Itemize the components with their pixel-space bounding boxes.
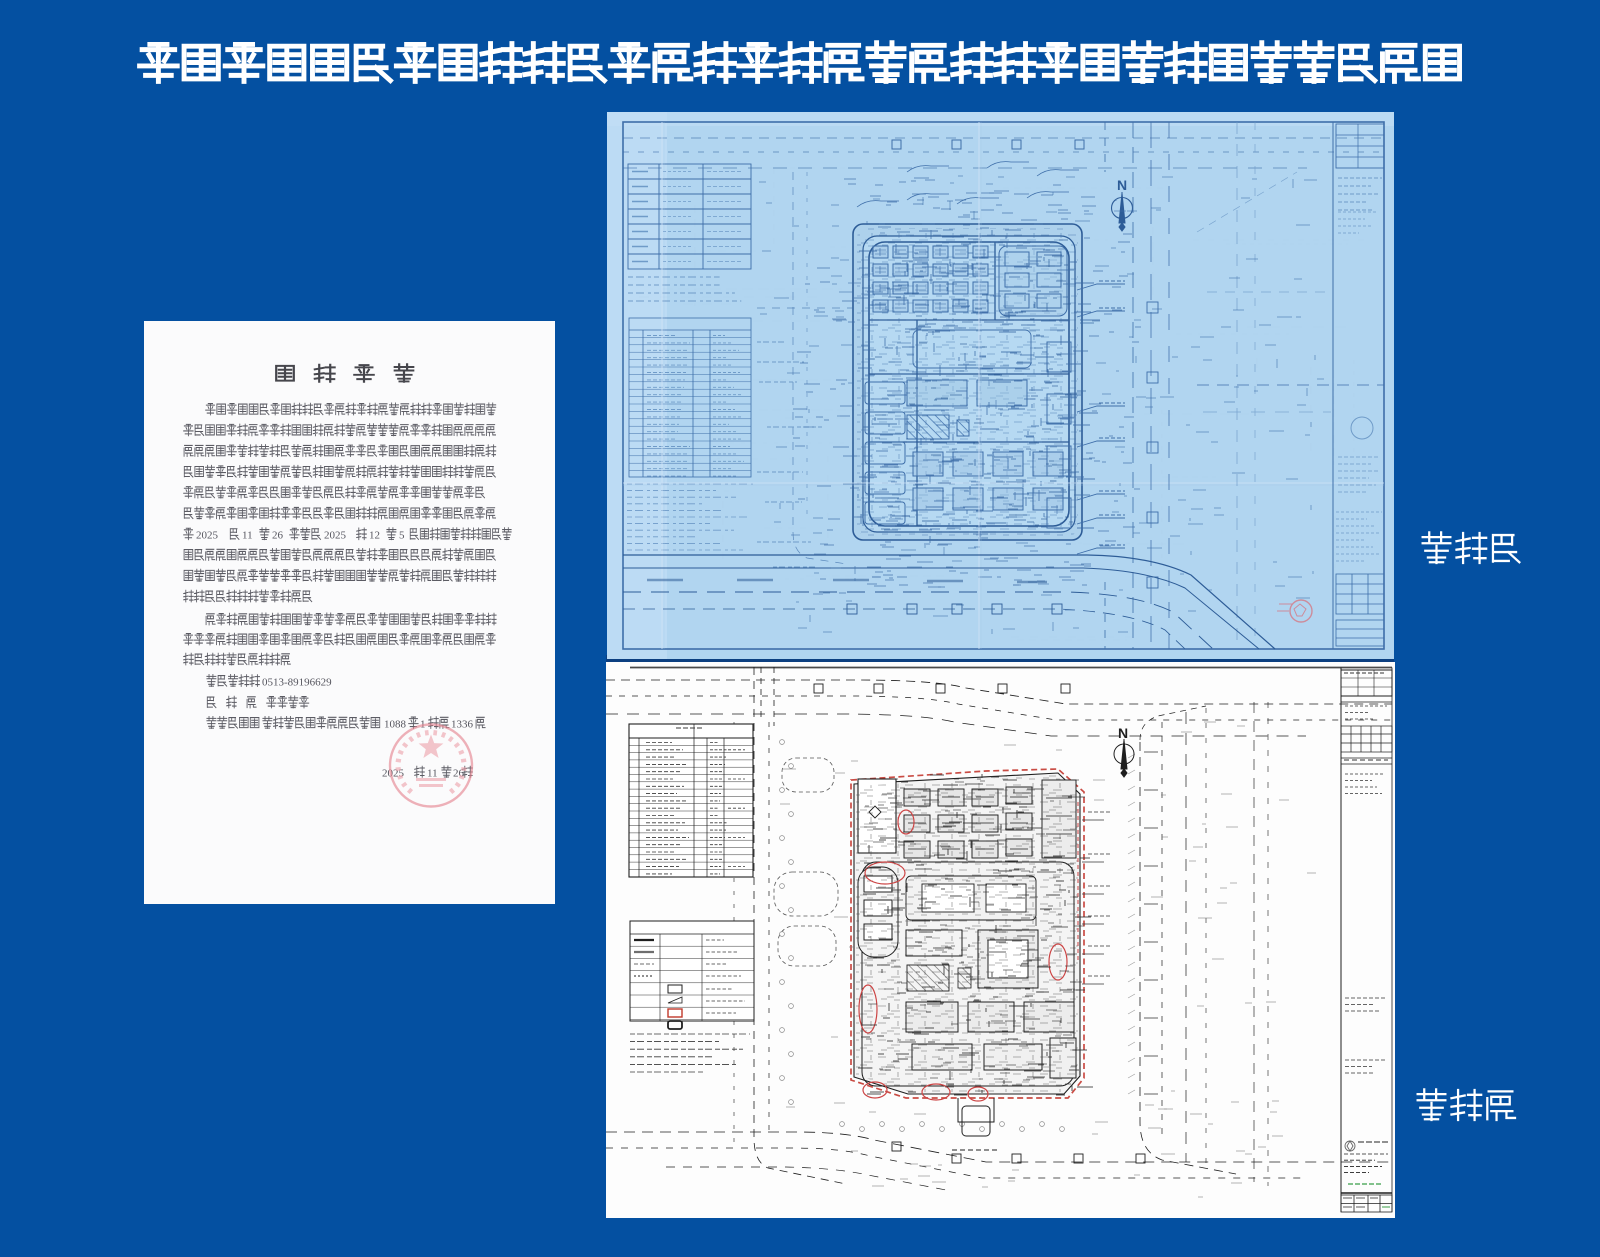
svg-text:N: N [1117,177,1127,193]
svg-text:1088: 1088 [384,719,407,731]
svg-text:26: 26 [272,530,284,542]
svg-text:5: 5 [399,530,405,542]
svg-text:0513-89196629: 0513-89196629 [262,677,332,689]
svg-text:11: 11 [242,530,253,542]
svg-text:2025: 2025 [196,530,219,542]
svg-text:11: 11 [427,768,438,780]
svg-text:12: 12 [369,530,380,542]
svg-text:1336: 1336 [451,719,474,731]
svg-text:N: N [1118,725,1128,741]
svg-text:2025: 2025 [324,530,347,542]
